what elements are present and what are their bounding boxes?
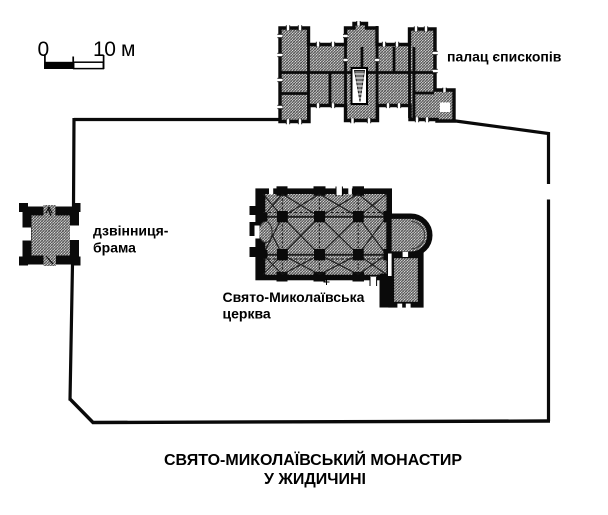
- svg-text:дзвінниця-: дзвінниця-: [93, 223, 169, 239]
- svg-text:церква: церква: [223, 306, 271, 322]
- svg-text:У ЖИДИЧИНІ: У ЖИДИЧИНІ: [264, 471, 366, 488]
- svg-text:10 м: 10 м: [93, 38, 135, 61]
- svg-text:палац єпископів: палац єпископів: [447, 49, 562, 65]
- svg-text:брама: брама: [93, 240, 136, 256]
- svg-text:СВЯТО-МИКОЛАЇВСЬКИЙ МОНАСТИР: СВЯТО-МИКОЛАЇВСЬКИЙ МОНАСТИР: [164, 450, 462, 469]
- svg-text:Свято-Миколаївська: Свято-Миколаївська: [223, 289, 365, 305]
- svg-text:0: 0: [38, 38, 50, 61]
